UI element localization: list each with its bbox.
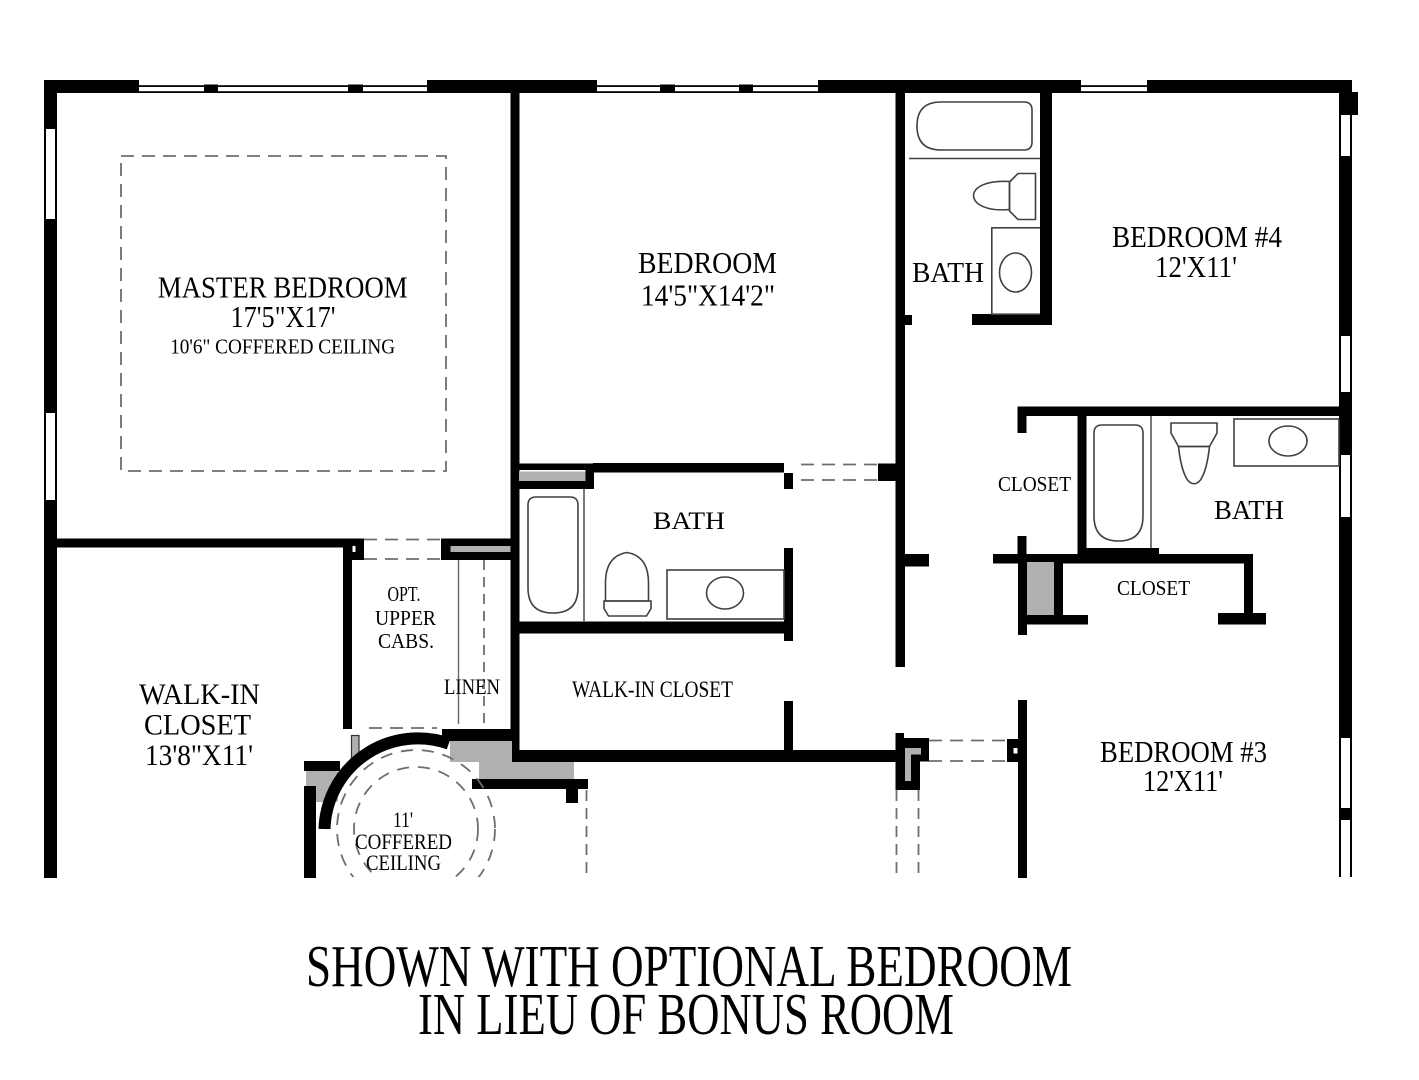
svg-text:10'6" COFFERED CEILING: 10'6" COFFERED CEILING — [170, 335, 395, 359]
svg-text:CEILING: CEILING — [366, 850, 441, 875]
svg-text:CLOSET: CLOSET — [1117, 576, 1190, 600]
svg-text:CLOSET: CLOSET — [998, 472, 1071, 496]
svg-text:OPT.: OPT. — [388, 582, 421, 606]
svg-text:IN LIEU OF BONUS ROOM: IN LIEU OF BONUS ROOM — [418, 981, 954, 1047]
svg-text:BEDROOM: BEDROOM — [638, 245, 777, 280]
svg-text:BATH: BATH — [1214, 495, 1284, 525]
svg-text:CLOSET: CLOSET — [144, 709, 251, 742]
svg-text:LINEN: LINEN — [444, 674, 500, 699]
svg-text:CABS.: CABS. — [378, 629, 434, 653]
svg-text:BATH: BATH — [912, 257, 984, 289]
svg-text:14'5"X14'2": 14'5"X14'2" — [641, 278, 775, 313]
svg-text:UPPER: UPPER — [375, 606, 436, 630]
svg-text:WALK-IN CLOSET: WALK-IN CLOSET — [572, 677, 733, 702]
svg-text:BATH: BATH — [653, 508, 725, 535]
svg-text:13'8"X11': 13'8"X11' — [145, 739, 253, 772]
svg-text:12'X11': 12'X11' — [1155, 249, 1237, 284]
svg-text:17'5"X17': 17'5"X17' — [231, 299, 336, 334]
svg-text:WALK-IN: WALK-IN — [139, 678, 260, 711]
svg-text:12'X11': 12'X11' — [1143, 763, 1223, 798]
